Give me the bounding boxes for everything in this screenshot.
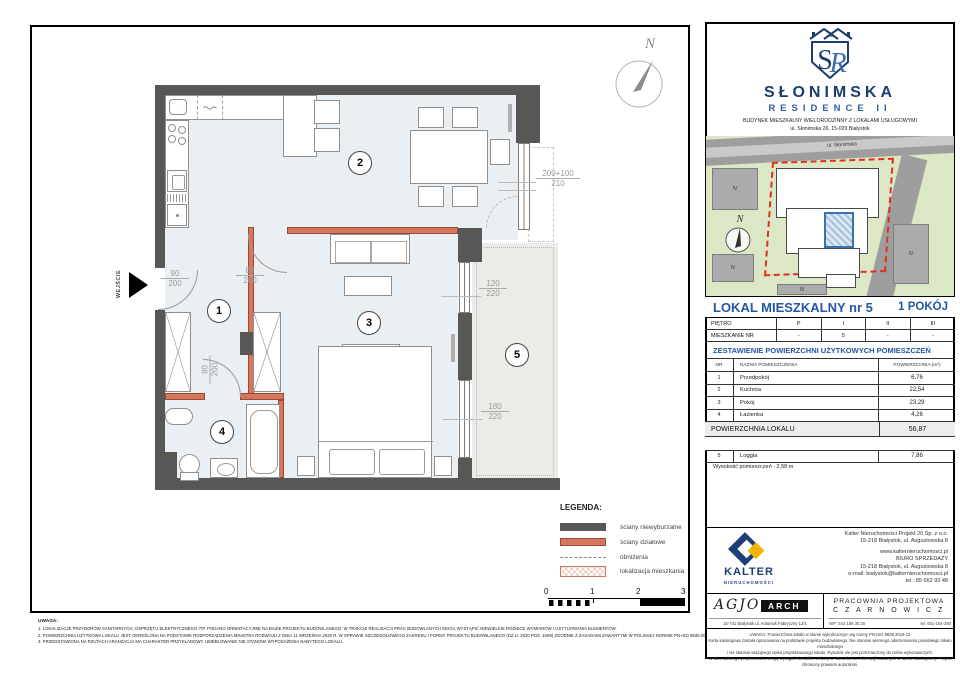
kalter-separator xyxy=(705,527,955,528)
table-spacer xyxy=(705,437,955,450)
dim-width: 80 xyxy=(236,266,264,276)
room-nr: 5 xyxy=(705,451,733,462)
scale-tick-0: 0 xyxy=(544,587,548,596)
room-nr: 1 xyxy=(705,372,733,384)
kalter-logo-icon xyxy=(728,532,772,566)
wardrobe xyxy=(165,312,191,392)
dining-chair xyxy=(418,107,444,128)
wall-loggia-bottom xyxy=(458,458,472,478)
floor-cell: II xyxy=(866,318,911,330)
building-description: BUDYNEK MIESZKALNY WIELORODZINNY Z LOKAL… xyxy=(705,118,955,124)
wall-loggia-mid xyxy=(458,313,472,380)
brand-letter-r: R xyxy=(828,48,846,79)
room-marker-5: 5 xyxy=(505,343,529,367)
island-stool xyxy=(314,100,340,124)
room-area: 7,86 xyxy=(879,451,955,462)
kitchen-cabinet xyxy=(167,204,187,226)
loggia-row: 5 Loggia 7,86 xyxy=(705,450,955,463)
designers-strip: AGJO ARCH 15-741 Białystok ul. Antoniuk … xyxy=(705,593,955,628)
stove-burner xyxy=(178,137,186,145)
footnote-line: W toku dalszego projektowania mogą wystą… xyxy=(705,656,955,668)
knob xyxy=(176,214,179,217)
stove-burner xyxy=(168,135,176,143)
wall-right-upper xyxy=(516,85,540,143)
kalter-phone: tel.: 85 662 93 48 xyxy=(800,578,948,585)
bath-shaft-block xyxy=(163,452,177,478)
dim-living-door: 80 200 xyxy=(236,266,264,285)
legend-title: LEGENDA: xyxy=(560,503,602,512)
entrance-arrow-icon xyxy=(129,272,148,298)
dim-height: 200 xyxy=(236,276,264,285)
scale-bar-segment-dashed xyxy=(549,600,593,606)
window-loggia-120 xyxy=(459,262,470,313)
apartment-cell: - xyxy=(866,330,911,342)
sofa-cushion xyxy=(371,241,407,263)
ceiling-height-note: Wysokość pomieszczeń - 2,58 m xyxy=(713,464,793,470)
scale-bar-tick xyxy=(593,598,594,603)
room-name: Pokój xyxy=(733,397,879,409)
room-number: 5 xyxy=(514,349,520,361)
room-name: Przedpokój xyxy=(733,372,879,384)
stove-burner xyxy=(168,124,176,132)
site-plan: ul. Słonimska IV IV IV IV N xyxy=(706,136,954,297)
note-line: 1. LOKALIZACJE PRZYBORÓW SANITARNYCH, OS… xyxy=(38,626,693,632)
kitchen-grill xyxy=(167,194,187,202)
header-room-name: NAZWA POMIESZCZENIA xyxy=(733,359,879,371)
nightstand xyxy=(297,456,315,476)
dim-height: 200 xyxy=(211,356,220,384)
dim-bath-door: 80 200 xyxy=(201,356,220,384)
area-row: 4 Łazienka 4,26 xyxy=(705,410,955,423)
room-number: 1 xyxy=(216,305,222,317)
sofa xyxy=(330,234,410,264)
dim-leader-line xyxy=(441,296,481,297)
apartment-cell: 5 xyxy=(822,330,867,342)
legend-label: lokalizacja mieszkania xyxy=(620,568,684,575)
dim-height: 200 xyxy=(161,279,189,288)
area-table-header: NR NAZWA POMIESZCZENIA POWIERZCHNIA (m²) xyxy=(705,359,955,372)
partition-bath-right xyxy=(240,393,284,400)
dim-width: 120 xyxy=(479,279,507,289)
floor-cell: I xyxy=(822,318,867,330)
bathtub xyxy=(246,404,280,478)
sink-oval xyxy=(217,463,235,476)
kitchen-island xyxy=(283,95,317,157)
compass-n-label: N xyxy=(644,36,656,52)
room-marker-4: 4 xyxy=(210,420,234,444)
dining-table xyxy=(410,130,488,184)
bed-blanket-line xyxy=(319,441,433,442)
dim-width: 90 xyxy=(161,269,189,279)
dim-height: 220 xyxy=(481,412,509,421)
room-area: 4,26 xyxy=(879,410,955,422)
studio-phone: tel. 601-154-380 xyxy=(921,621,952,626)
floor-plan-sheet: 1 2 3 4 5 90 200 80 200 80 200 200+100 2… xyxy=(0,0,960,678)
compass-icon: N xyxy=(612,32,670,112)
room-marker-2: 2 xyxy=(348,151,372,175)
studio-nip: NIP: 542 186 35 28 xyxy=(829,621,865,626)
room-number: 4 xyxy=(219,426,225,438)
dim-leader-line xyxy=(498,182,536,183)
sink-basin xyxy=(172,175,185,190)
building-footprint xyxy=(826,274,856,288)
room-name: Kuchnia xyxy=(733,385,879,397)
radiator xyxy=(451,334,455,362)
dim-main-window: 200+100 210 xyxy=(536,169,580,188)
partition-bath-left xyxy=(165,393,205,400)
area-row: 3 Pokój 23,29 xyxy=(705,397,955,410)
agio-address: 15-741 Białystok ul. Antoniuk Fabryczny … xyxy=(709,618,821,626)
building-floors-tag: IV xyxy=(800,287,805,293)
apartment-cell: - xyxy=(911,330,956,342)
bed xyxy=(318,346,432,478)
kalter-email: e-mail: bialystok@kalternieruchomosci.pl xyxy=(800,571,948,578)
neighbor-building: IV xyxy=(777,284,827,295)
apartment-number-row: MIESZKANIE NR - 5 - - xyxy=(705,330,955,342)
balcony-above-dashed xyxy=(528,147,554,242)
squiggle-icon xyxy=(198,96,222,119)
dim-width: 200+100 xyxy=(536,169,580,179)
coffee-table xyxy=(344,276,392,296)
studio-name-line2: C Z A R N O W I C Z xyxy=(823,607,955,614)
room-number: 2 xyxy=(357,157,363,169)
room-marker-3: 3 xyxy=(357,311,381,335)
partition-living xyxy=(287,227,458,234)
bathtub-inner xyxy=(250,410,278,474)
header-nr: NR xyxy=(705,359,733,371)
apartment-location-highlight xyxy=(824,212,854,248)
stove-burner xyxy=(178,126,186,134)
legend-swatch-dark-wall xyxy=(560,523,606,531)
dining-chair xyxy=(452,107,478,128)
wardrobe-x-icon xyxy=(166,313,190,391)
scale-tick-2: 2 xyxy=(636,587,640,596)
room-nr: 4 xyxy=(705,410,733,422)
brand-roman-numeral: II xyxy=(829,33,833,39)
building-floors-tag: IV xyxy=(731,265,736,271)
legend-label: obniżenia xyxy=(620,554,648,561)
legend-item-structural: ściany niewyburzalne xyxy=(560,521,682,533)
dim-height: 210 xyxy=(536,179,580,188)
room-marker-1: 1 xyxy=(207,299,231,323)
scale-tick-3: 3 xyxy=(681,587,685,596)
apartment-cell: - xyxy=(777,330,822,342)
total-area-value: 56,87 xyxy=(879,422,955,436)
bathroom-sink xyxy=(210,458,238,478)
total-area-label: POWIERZCHNIA LOKALU xyxy=(705,422,879,436)
legend-item-location: lokalizacja mieszkania xyxy=(560,565,684,577)
kitchen-appliance-dashed xyxy=(197,95,223,120)
neighbor-building: IV xyxy=(712,168,758,210)
kitchen-sink-unit xyxy=(167,170,187,192)
legend-swatch-hatch xyxy=(560,566,606,577)
kalter-line: 15-218 Białystok, ul. Augustowska 8 xyxy=(800,538,948,545)
bathroom-basin xyxy=(165,408,193,425)
floors-row: PIĘTRO P I II III xyxy=(705,318,955,330)
room-name: Łazienka xyxy=(733,410,879,422)
header-area: POWIERZCHNIA (m²) xyxy=(879,359,955,371)
island-stool xyxy=(314,128,340,152)
room-nr: 3 xyxy=(705,397,733,409)
radiator xyxy=(508,104,512,132)
apartment-rooms-count: 1 POKÓJ xyxy=(898,301,948,313)
dim-leader-line xyxy=(498,190,536,191)
wall-bottom xyxy=(155,478,560,490)
room-number: 3 xyxy=(366,317,372,329)
kalter-name: KALTER xyxy=(716,566,782,578)
apartment-title: LOKAL MIESZKALNY nr 5 xyxy=(713,300,873,315)
scale-tick-1: 1 xyxy=(590,587,594,596)
sofa-cushion xyxy=(335,241,371,263)
pillow xyxy=(329,449,375,475)
legend-swatch-partition-wall xyxy=(560,538,606,546)
floor-cell: III xyxy=(911,318,956,330)
entrance-label: WEJŚCIE xyxy=(116,262,128,306)
kalter-line: 15-218 Białystok, ul. Augustowska 8 xyxy=(800,564,948,571)
room-area: 6,76 xyxy=(879,372,955,384)
studio-name-line1: PRACOWNIA PROJEKTOWA xyxy=(823,598,955,605)
dim-entry-door: 90 200 xyxy=(161,269,189,288)
brand-name: SŁONIMSKA xyxy=(705,84,955,102)
dim-window-180: 180 220 xyxy=(481,402,509,421)
footnote-line: Karta katalogowa została opracowana na p… xyxy=(705,638,955,650)
area-row: 1 Przedpokój 6,76 xyxy=(705,372,955,385)
note-line: 3. PRZEDSTAWIONA NA RZUTACH ARANŻACJA MA… xyxy=(38,639,693,645)
area-row: 2 Kuchnia 22,54 xyxy=(705,385,955,398)
dim-width: 80 xyxy=(201,356,211,384)
neighbor-building: IV xyxy=(712,254,754,282)
neighbor-building: IV xyxy=(893,224,929,284)
wall-step-corner xyxy=(458,228,482,262)
building-floors-tag: IV xyxy=(909,251,914,257)
arch-badge: ARCH xyxy=(761,600,808,612)
floors-table: PIĘTRO P I II III MIESZKANIE NR - 5 - - xyxy=(705,318,955,342)
panel-footnote: UWAGA: Powierzchnia lokalu w stanie wyko… xyxy=(705,628,955,668)
room-area: 23,29 xyxy=(879,397,955,409)
dim-leader-line xyxy=(443,419,483,420)
site-compass-icon: N xyxy=(722,210,754,256)
dim-height: 220 xyxy=(479,289,507,298)
apartment-title-row: LOKAL MIESZKALNY nr 5 1 POKÓJ xyxy=(705,296,955,318)
brand-subname: RESIDENCE II xyxy=(705,103,955,114)
notes-title: UWAGA: xyxy=(38,619,693,625)
wardrobe xyxy=(253,312,281,392)
dining-chair xyxy=(490,139,510,165)
kalter-contact-block: Kalter Nieruchomości Projekt 20 Sp. z o.… xyxy=(800,531,948,586)
plan-notes: UWAGA: 1. LOKALIZACJE PRZYBORÓW SANITARN… xyxy=(38,619,693,646)
toilet-tank xyxy=(180,472,199,481)
room-name: Loggia xyxy=(733,451,879,462)
kalter-subname: NIERUCHOMOŚCI xyxy=(716,580,782,585)
kalter-line: BIURO SPRZEDAŻY xyxy=(800,556,948,563)
legend-label: ściany niewyburzalne xyxy=(620,524,682,531)
kitchen-corner-sink xyxy=(169,99,187,115)
legend-swatch-dashed xyxy=(560,557,606,558)
nightstand xyxy=(434,456,452,476)
dining-chair xyxy=(452,186,478,207)
building-address: ul. Słonimska 26, 15-029 Białystok xyxy=(705,126,955,132)
wall-top xyxy=(155,85,540,95)
room-area: 22,54 xyxy=(879,385,955,397)
room-nr: 2 xyxy=(705,385,733,397)
dim-window-120: 120 220 xyxy=(479,279,507,298)
dining-chair xyxy=(418,186,444,207)
window-main xyxy=(518,143,530,230)
area-summary-heading: ZESTAWIENIE POWIERZCHNI UŻYTKOWYCH POMIE… xyxy=(713,346,931,355)
agio-logo: AGJO xyxy=(714,597,760,613)
kalter-line: Kalter Nieruchomości Projekt 20 Sp. z o.… xyxy=(800,531,948,538)
wardrobe-x-icon xyxy=(254,313,280,391)
pillow xyxy=(379,449,425,475)
legend-item-lowered: obniżenia xyxy=(560,551,648,563)
area-table: NR NAZWA POMIESZCZENIA POWIERZCHNIA (m²)… xyxy=(705,358,955,463)
total-area-row: POWIERZCHNIA LOKALU 56,87 xyxy=(705,422,955,437)
floors-row-label: MIESZKANIE NR xyxy=(705,330,777,342)
legend-item-partition: ściany działowe xyxy=(560,536,666,548)
studio-contacts: NIP: 542 186 35 28 tel. 601-154-380 xyxy=(829,618,951,626)
site-compass-n: N xyxy=(736,214,745,225)
dim-width: 180 xyxy=(481,402,509,412)
shaft-block xyxy=(240,332,254,355)
wall-left-upper xyxy=(155,95,165,268)
floors-row-label: PIĘTRO xyxy=(705,318,777,330)
brand-monogram-icon: II S R xyxy=(798,26,862,82)
scale-bar-segment-solid xyxy=(640,599,685,606)
floor-cell: P xyxy=(777,318,822,330)
building-floors-tag: IV xyxy=(733,186,738,192)
legend-label: ściany działowe xyxy=(620,539,666,546)
toilet xyxy=(177,454,201,480)
